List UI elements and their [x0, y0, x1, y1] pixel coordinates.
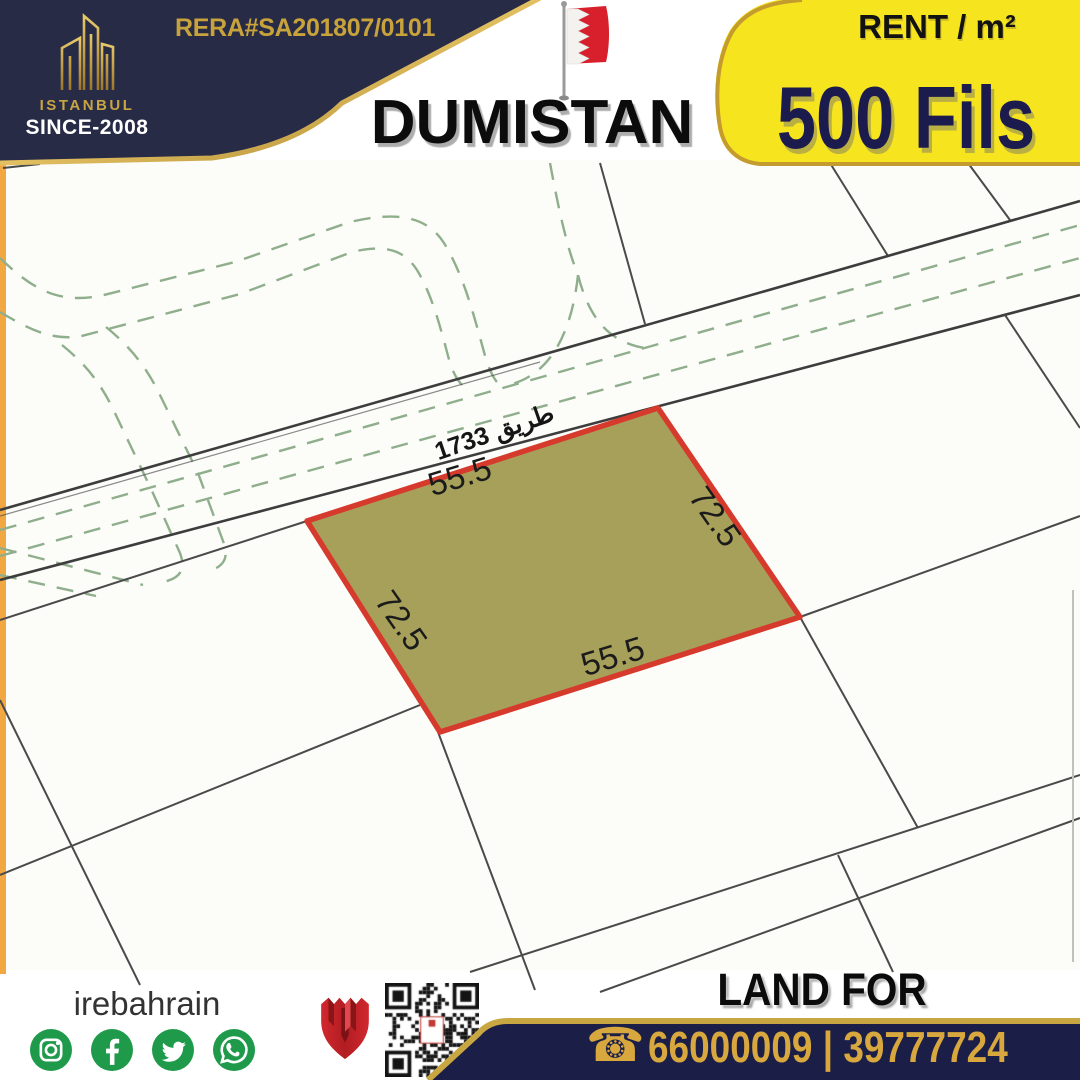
price-value: 500 Fils	[767, 74, 1045, 162]
price-unit-label: RENT / m²	[828, 8, 1046, 46]
location-title: DUMISTAN	[358, 92, 706, 154]
telephone-icon: ☎	[586, 1022, 645, 1069]
brand-name: ISTANBUL	[28, 97, 146, 114]
phone-numbers: 66000009 | 39777724	[648, 1026, 1009, 1070]
map-scan-edge	[0, 162, 6, 974]
brand-since: SINCE-2008	[10, 116, 164, 140]
flyer: 55.5 72.5 72.5 55.5 طريق 1733	[0, 0, 1080, 1080]
rera-number: RERA#SA201807/0101	[175, 14, 435, 43]
